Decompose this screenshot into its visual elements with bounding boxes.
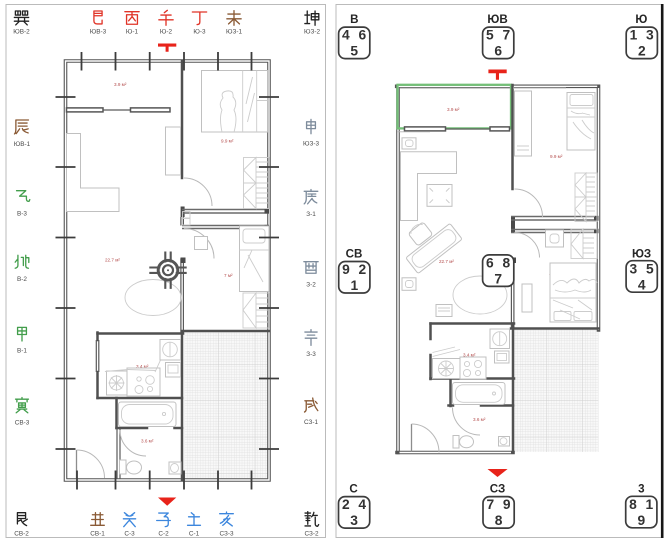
svg-text:9: 9: [637, 513, 645, 528]
svg-text:ЮЗ: ЮЗ: [632, 248, 651, 261]
svg-text:1: 1: [646, 497, 654, 512]
svg-text:С: С: [349, 483, 358, 496]
svg-text:2: 2: [342, 497, 350, 512]
svg-text:6: 6: [486, 256, 494, 271]
svg-text:7: 7: [486, 497, 494, 512]
svg-text:3.9 м²: 3.9 м²: [447, 107, 460, 112]
svg-text:4: 4: [358, 497, 366, 512]
svg-text:СЗ-3: СЗ-3: [219, 531, 234, 538]
svg-text:9: 9: [503, 497, 511, 512]
svg-text:5: 5: [350, 44, 358, 59]
svg-text:6: 6: [494, 44, 502, 59]
svg-text:З-1: З-1: [306, 211, 316, 218]
svg-text:22.7 м²: 22.7 м²: [439, 259, 454, 264]
svg-text:9: 9: [342, 262, 350, 277]
svg-text:3.6 м²: 3.6 м²: [141, 439, 154, 444]
svg-text:2: 2: [638, 44, 646, 59]
svg-text:7: 7: [494, 272, 502, 287]
svg-text:Ю-2: Ю-2: [160, 29, 173, 36]
svg-text:7 м²: 7 м²: [224, 273, 233, 278]
svg-text:ЮВ: ЮВ: [487, 13, 507, 26]
svg-text:В-3: В-3: [17, 211, 27, 218]
svg-text:3.9 м²: 3.9 м²: [114, 82, 127, 87]
svg-text:4: 4: [638, 277, 646, 292]
svg-text:8: 8: [629, 497, 637, 512]
svg-text:3: 3: [630, 261, 638, 276]
svg-text:В: В: [350, 13, 358, 26]
svg-text:ЮВ-2: ЮВ-2: [13, 29, 30, 36]
svg-text:2: 2: [359, 262, 367, 277]
svg-text:В-2: В-2: [17, 276, 27, 283]
svg-text:3.6 м²: 3.6 м²: [473, 417, 486, 422]
svg-text:ЮВ-3: ЮВ-3: [90, 29, 107, 36]
svg-text:4: 4: [342, 28, 350, 43]
svg-text:3: 3: [350, 513, 358, 528]
svg-text:С-3: С-3: [124, 531, 135, 538]
svg-text:СВ-3: СВ-3: [15, 419, 30, 426]
svg-text:22.7 м²: 22.7 м²: [105, 258, 120, 263]
svg-text:СВ-1: СВ-1: [90, 531, 105, 538]
svg-text:8: 8: [502, 256, 510, 271]
svg-text:5: 5: [486, 28, 494, 43]
svg-text:6: 6: [358, 28, 366, 43]
svg-text:9.9 м²: 9.9 м²: [221, 139, 234, 144]
svg-text:1: 1: [350, 278, 358, 293]
svg-text:5: 5: [646, 261, 654, 276]
svg-text:1: 1: [630, 28, 638, 43]
svg-text:З-2: З-2: [306, 282, 316, 289]
svg-text:3: 3: [638, 483, 645, 496]
svg-text:9.9 м²: 9.9 м²: [550, 154, 563, 159]
svg-text:3: 3: [646, 28, 654, 43]
svg-text:СВ-2: СВ-2: [14, 531, 29, 538]
svg-text:С-2: С-2: [158, 531, 169, 538]
svg-text:Ю-1: Ю-1: [126, 29, 139, 36]
svg-text:СЗ-1: СЗ-1: [304, 419, 319, 426]
svg-text:ЮЗ-1: ЮЗ-1: [226, 29, 242, 36]
svg-text:ЮЗ-3: ЮЗ-3: [303, 140, 319, 147]
svg-text:С-1: С-1: [189, 531, 200, 538]
svg-text:СЗ: СЗ: [490, 483, 505, 496]
svg-text:Ю: Ю: [635, 13, 647, 26]
svg-text:В-1: В-1: [17, 348, 27, 355]
svg-text:7: 7: [502, 28, 510, 43]
svg-text:ЮВ-1: ЮВ-1: [14, 141, 31, 148]
svg-text:СВ: СВ: [346, 248, 363, 261]
svg-text:З-3: З-3: [306, 351, 316, 358]
svg-text:Ю-3: Ю-3: [193, 29, 206, 36]
svg-text:ЮЗ-2: ЮЗ-2: [304, 29, 320, 36]
svg-text:8: 8: [495, 513, 503, 528]
svg-text:СЗ-2: СЗ-2: [304, 531, 319, 538]
